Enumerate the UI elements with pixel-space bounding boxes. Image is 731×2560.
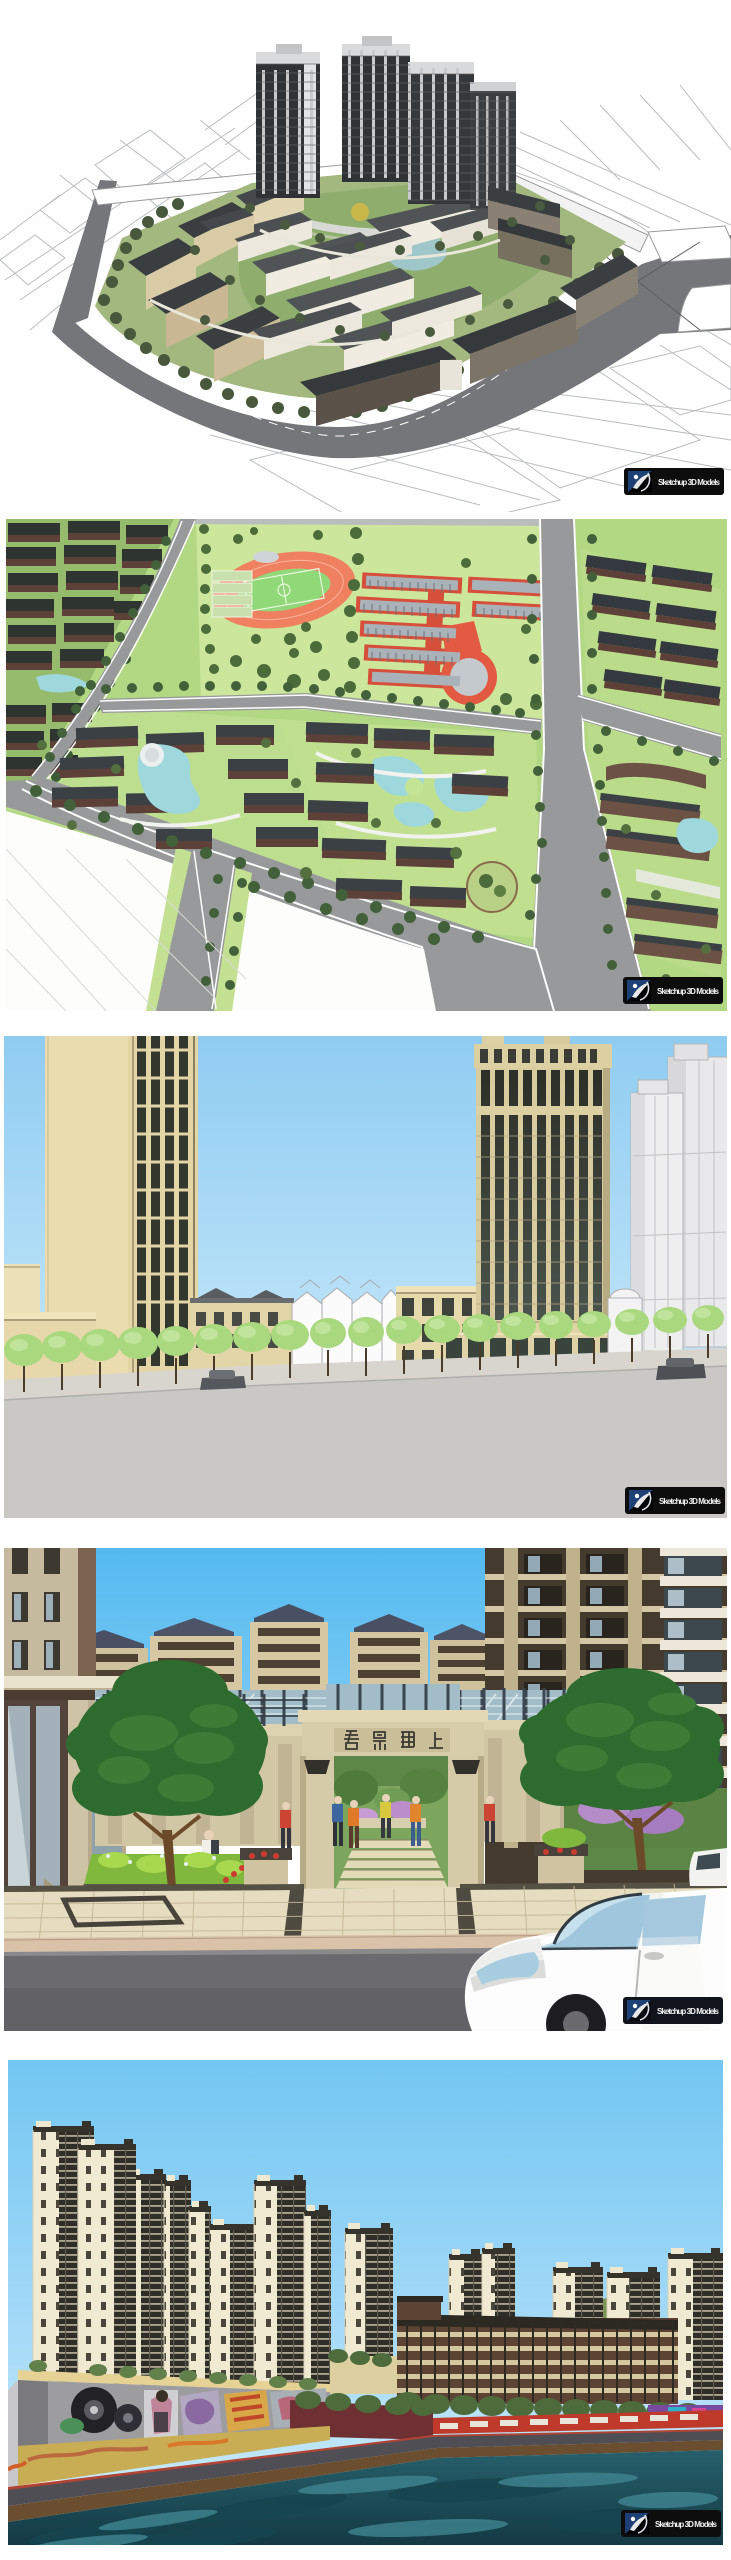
svg-text:Sketchup 3D Models: Sketchup 3D Models [657, 2007, 720, 2016]
svg-text:Sketchup 3D Models: Sketchup 3D Models [659, 1497, 722, 1506]
svg-text:Sketchup 3D Models: Sketchup 3D Models [657, 987, 720, 996]
svg-text:Sketchup 3D Models: Sketchup 3D Models [655, 2520, 718, 2529]
svg-text:Sketchup 3D Models: Sketchup 3D Models [658, 478, 721, 487]
